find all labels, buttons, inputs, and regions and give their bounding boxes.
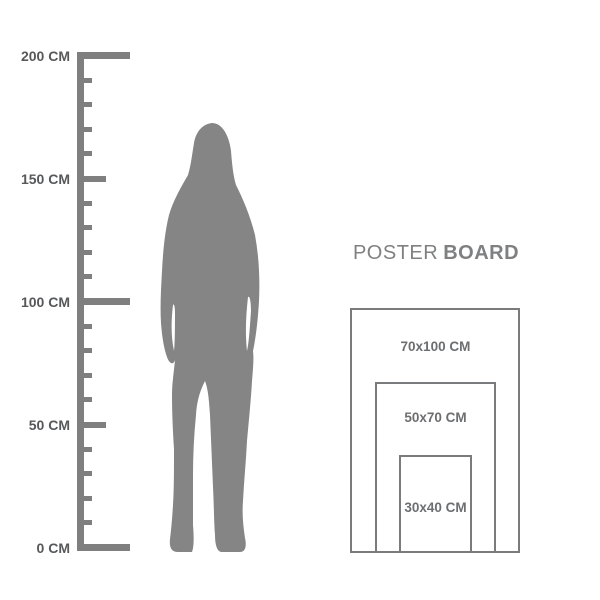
ruler-tick-120cm xyxy=(77,250,92,255)
ruler-label-150cm: 150 CM xyxy=(0,170,70,188)
ruler-tick-0cm xyxy=(77,544,130,551)
ruler-tick-180cm xyxy=(77,102,92,107)
poster-size-guide: 200 CM150 CM100 CM50 CM0 CM POSTERBOARD … xyxy=(0,0,600,600)
ruler-tick-10cm xyxy=(77,520,92,525)
ruler-tick-110cm xyxy=(77,274,92,279)
ruler-tick-170cm xyxy=(77,127,92,132)
ruler-tick-50cm xyxy=(77,422,106,428)
ruler-tick-80cm xyxy=(77,348,92,353)
ruler-tick-90cm xyxy=(77,324,92,329)
ruler-tick-200cm xyxy=(77,52,130,59)
ruler-label-0cm: 0 CM xyxy=(0,539,70,557)
ruler-tick-20cm xyxy=(77,496,92,501)
title-regular: POSTER xyxy=(353,242,438,264)
ruler-label-100cm: 100 CM xyxy=(0,293,70,311)
ruler-tick-160cm xyxy=(77,151,92,156)
ruler-tick-70cm xyxy=(77,373,92,378)
ruler-tick-30cm xyxy=(77,471,92,476)
ruler-tick-40cm xyxy=(77,447,92,452)
ruler-tick-150cm xyxy=(77,176,106,182)
ruler-tick-100cm xyxy=(77,298,130,305)
ruler-tick-60cm xyxy=(77,397,92,402)
poster-size-label-70x100: 70x100 CM xyxy=(352,338,518,356)
ruler-label-50cm: 50 CM xyxy=(0,416,70,434)
ruler-tick-140cm xyxy=(77,201,92,206)
title-bold: BOARD xyxy=(443,242,519,264)
poster-size-label-50x70: 50x70 CM xyxy=(377,409,495,427)
ruler-tick-130cm xyxy=(77,225,92,230)
ruler-tick-190cm xyxy=(77,78,92,83)
poster-rect-30x40: 30x40 CM xyxy=(399,455,472,553)
ruler-label-200cm: 200 CM xyxy=(0,47,70,65)
poster-size-label-30x40: 30x40 CM xyxy=(401,499,470,517)
poster-board-title: POSTERBOARD xyxy=(346,242,526,264)
female-silhouette xyxy=(148,123,274,553)
